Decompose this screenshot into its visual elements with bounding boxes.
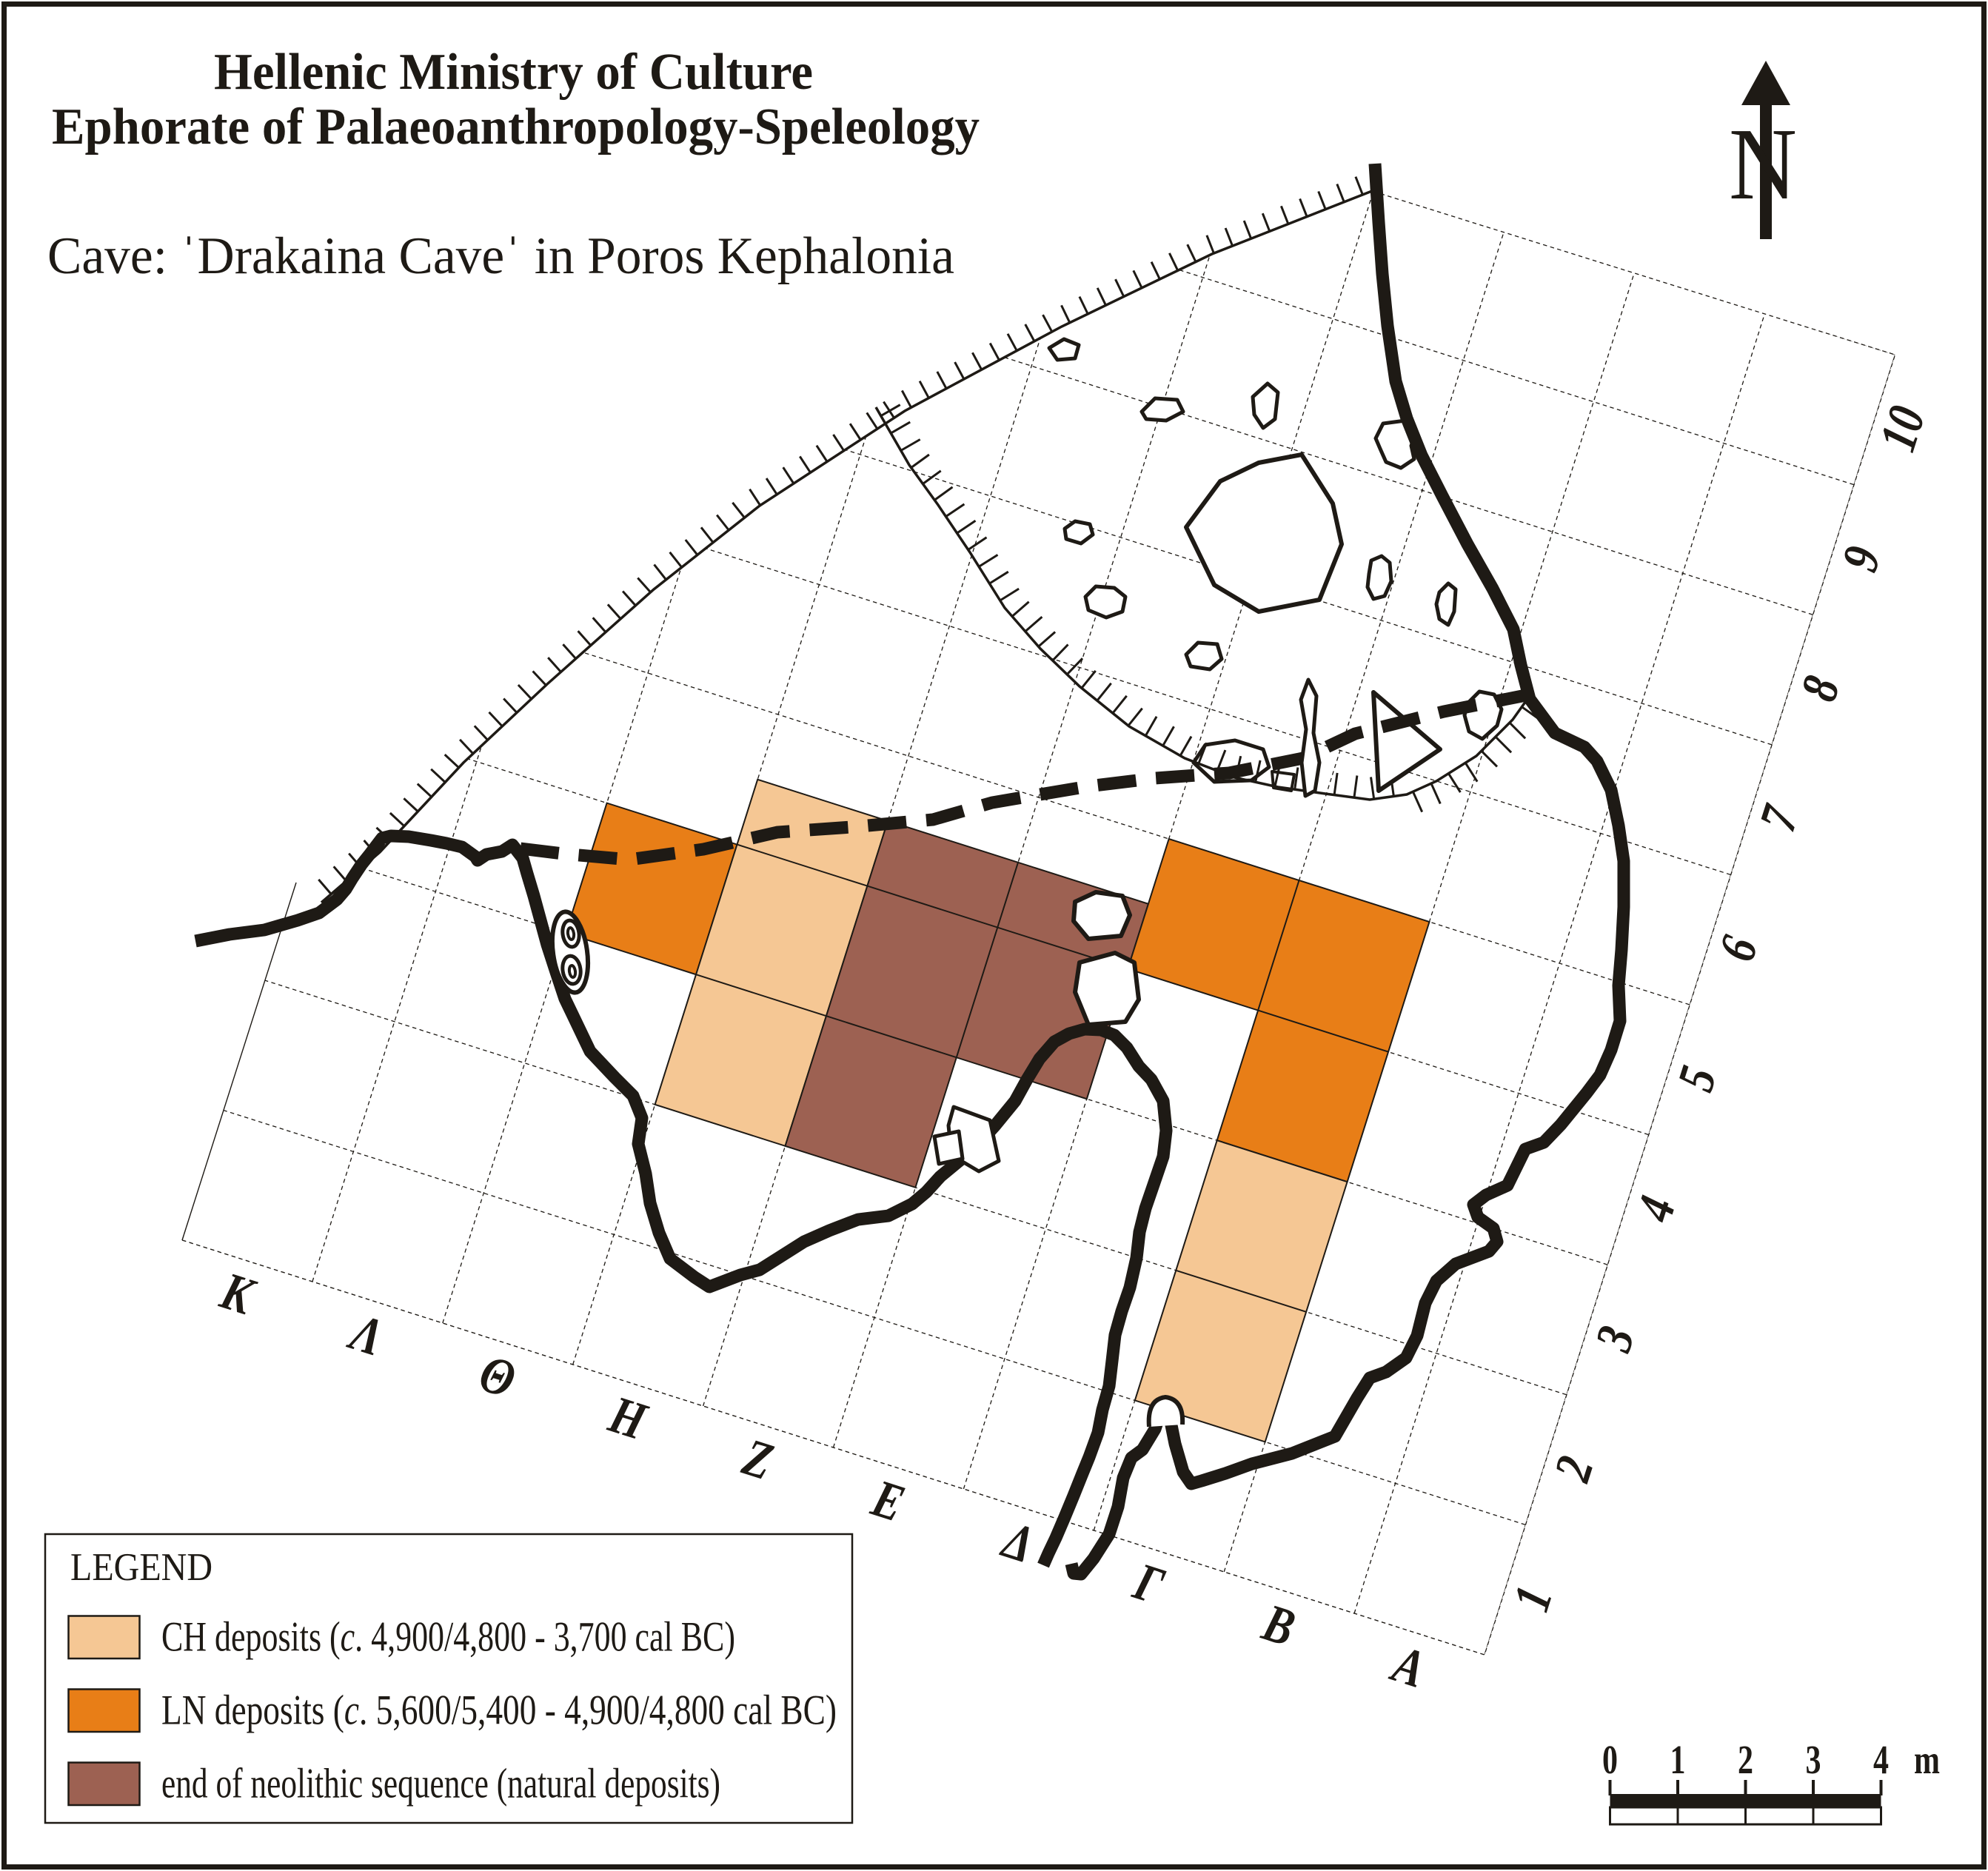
svg-text:Hellenic Ministry of Culture: Hellenic Ministry of Culture xyxy=(214,43,813,101)
svg-text:CH deposits (c. 4,900/4,800 -: CH deposits (c. 4,900/4,800 - 3,700 cal … xyxy=(161,1614,735,1661)
svg-text:N: N xyxy=(1729,108,1797,221)
svg-text:m: m xyxy=(1914,1738,1940,1783)
svg-text:4: 4 xyxy=(1873,1738,1889,1783)
svg-text:2: 2 xyxy=(1738,1738,1753,1783)
svg-text:1: 1 xyxy=(1670,1738,1686,1783)
svg-text:Ephorate of Palaeoanthropology: Ephorate of Palaeoanthropology-Speleolog… xyxy=(52,98,980,155)
svg-text:end of neolithic sequence (nat: end of neolithic sequence (natural depos… xyxy=(161,1761,720,1807)
svg-text:3: 3 xyxy=(1806,1738,1821,1783)
svg-text:Cave: ˈDrakaina Caveˈ in Poros: Cave: ˈDrakaina Caveˈ in Poros Kephaloni… xyxy=(47,227,954,285)
svg-text:LN deposits (c. 5,600/5,400 -: LN deposits (c. 5,600/5,400 - 4,900/4,80… xyxy=(161,1687,837,1734)
svg-text:LEGEND: LEGEND xyxy=(70,1547,212,1589)
svg-text:0: 0 xyxy=(1602,1738,1618,1783)
